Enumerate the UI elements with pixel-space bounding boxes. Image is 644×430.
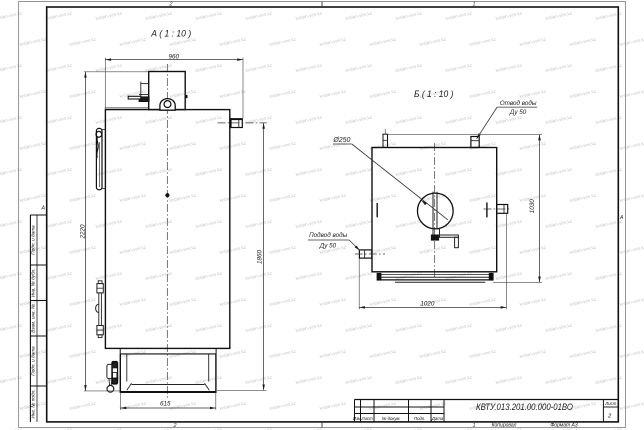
svg-text:kotlan-ves.kz: kotlan-ves.kz <box>219 140 247 151</box>
svg-text:2: 2 <box>168 1 172 7</box>
svg-text:kotlan-ves.kz: kotlan-ves.kz <box>295 218 323 229</box>
svg-text:kotlan-ves.kz: kotlan-ves.kz <box>619 296 644 307</box>
svg-text:kotlan-ves.kz: kotlan-ves.kz <box>495 322 523 333</box>
svg-text:kotlan-ves.kz: kotlan-ves.kz <box>319 88 347 99</box>
svg-text:kotlan-ves.kz: kotlan-ves.kz <box>619 192 644 203</box>
svg-text:kotlan-ves.kz: kotlan-ves.kz <box>95 10 123 21</box>
svg-text:kotlan-ves.kz: kotlan-ves.kz <box>569 36 597 47</box>
svg-text:КВТУ.013.201.00.000-01ВО: КВТУ.013.201.00.000-01ВО <box>476 402 573 412</box>
svg-text:kotlan-ves.kz: kotlan-ves.kz <box>0 166 23 177</box>
svg-text:kotlan-ves.kz: kotlan-ves.kz <box>269 244 297 255</box>
svg-text:kotlan-ves.kz: kotlan-ves.kz <box>395 166 423 177</box>
svg-text:kotlan-ves.kz: kotlan-ves.kz <box>495 10 523 21</box>
svg-text:Взам. инв. №: Взам. инв. № <box>31 304 36 333</box>
svg-text:kotlan-ves.kz: kotlan-ves.kz <box>245 322 273 333</box>
svg-text:kotlan-ves.kz: kotlan-ves.kz <box>419 36 447 47</box>
svg-text:kotlan-ves.kz: kotlan-ves.kz <box>569 140 597 151</box>
svg-text:kotlan-ves.kz: kotlan-ves.kz <box>369 36 397 47</box>
svg-text:kotlan-ves.kz: kotlan-ves.kz <box>469 348 497 359</box>
svg-text:А: А <box>40 206 45 212</box>
svg-text:kotlan-ves.kz: kotlan-ves.kz <box>369 244 397 255</box>
svg-text:kotlan-ves.kz: kotlan-ves.kz <box>469 192 497 203</box>
svg-text:kotlan-ves.kz: kotlan-ves.kz <box>119 296 147 307</box>
svg-text:kotlan-ves.kz: kotlan-ves.kz <box>119 244 147 255</box>
svg-text:kotlan-ves.kz: kotlan-ves.kz <box>195 10 223 21</box>
svg-text:kotlan-ves.kz: kotlan-ves.kz <box>469 296 497 307</box>
svg-text:kotlan-ves.kz: kotlan-ves.kz <box>545 218 573 229</box>
svg-text:kotlan-ves.kz: kotlan-ves.kz <box>169 140 197 151</box>
svg-text:kotlan-ves.kz: kotlan-ves.kz <box>19 88 47 99</box>
svg-text:kotlan-ves.kz: kotlan-ves.kz <box>219 400 247 411</box>
svg-text:kotlan-ves.kz: kotlan-ves.kz <box>319 400 347 411</box>
svg-text:kotlan-ves.kz: kotlan-ves.kz <box>219 192 247 203</box>
svg-text:kotlan-ves.kz: kotlan-ves.kz <box>19 192 47 203</box>
svg-text:kotlan-ves.kz: kotlan-ves.kz <box>295 374 323 385</box>
svg-text:kotlan-ves.kz: kotlan-ves.kz <box>469 244 497 255</box>
svg-text:kotlan-ves.kz: kotlan-ves.kz <box>569 400 597 411</box>
svg-text:kotlan-ves.kz: kotlan-ves.kz <box>319 348 347 359</box>
svg-text:Копировал: Копировал <box>492 423 517 429</box>
svg-text:kotlan-ves.kz: kotlan-ves.kz <box>0 218 23 229</box>
svg-text:kotlan-ves.kz: kotlan-ves.kz <box>345 114 373 125</box>
svg-text:kotlan-ves.kz: kotlan-ves.kz <box>0 426 23 430</box>
svg-text:kotlan-ves.kz: kotlan-ves.kz <box>195 62 223 73</box>
svg-text:kotlan-ves.kz: kotlan-ves.kz <box>169 88 197 99</box>
svg-text:kotlan-ves.kz: kotlan-ves.kz <box>319 36 347 47</box>
svg-text:kotlan-ves.kz: kotlan-ves.kz <box>219 36 247 47</box>
svg-text:kotlan-ves.kz: kotlan-ves.kz <box>445 114 473 125</box>
svg-text:kotlan-ves.kz: kotlan-ves.kz <box>245 166 273 177</box>
svg-text:kotlan-ves.kz: kotlan-ves.kz <box>45 218 73 229</box>
svg-text:kotlan-ves.kz: kotlan-ves.kz <box>95 322 123 333</box>
svg-text:kotlan-ves.kz: kotlan-ves.kz <box>519 140 547 151</box>
svg-text:kotlan-ves.kz: kotlan-ves.kz <box>95 114 123 125</box>
svg-text:kotlan-ves.kz: kotlan-ves.kz <box>19 36 47 47</box>
svg-text:kotlan-ves.kz: kotlan-ves.kz <box>169 400 197 411</box>
svg-text:kotlan-ves.kz: kotlan-ves.kz <box>569 244 597 255</box>
svg-text:960: 960 <box>169 53 180 60</box>
svg-text:kotlan-ves.kz: kotlan-ves.kz <box>219 296 247 307</box>
svg-text:kotlan-ves.kz: kotlan-ves.kz <box>269 296 297 307</box>
svg-text:kotlan-ves.kz: kotlan-ves.kz <box>395 10 423 21</box>
svg-text:kotlan-ves.kz: kotlan-ves.kz <box>345 62 373 73</box>
svg-text:kotlan-ves.kz: kotlan-ves.kz <box>345 322 373 333</box>
svg-text:kotlan-ves.kz: kotlan-ves.kz <box>495 62 523 73</box>
svg-text:kotlan-ves.kz: kotlan-ves.kz <box>145 426 173 430</box>
svg-text:kotlan-ves.kz: kotlan-ves.kz <box>495 166 523 177</box>
svg-text:kotlan-ves.kz: kotlan-ves.kz <box>95 62 123 73</box>
svg-text:kotlan-ves.kz: kotlan-ves.kz <box>45 10 73 21</box>
svg-text:Подп. и дата: Подп. и дата <box>31 225 36 255</box>
svg-text:kotlan-ves.kz: kotlan-ves.kz <box>119 140 147 151</box>
svg-text:kotlan-ves.kz: kotlan-ves.kz <box>569 296 597 307</box>
svg-text:kotlan-ves.kz: kotlan-ves.kz <box>519 296 547 307</box>
svg-text:Ду 50: Ду 50 <box>319 243 337 250</box>
svg-text:kotlan-ves.kz: kotlan-ves.kz <box>295 270 323 281</box>
svg-text:kotlan-ves.kz: kotlan-ves.kz <box>345 10 373 21</box>
svg-text:kotlan-ves.kz: kotlan-ves.kz <box>545 166 573 177</box>
svg-text:2: 2 <box>172 423 176 429</box>
svg-text:1860: 1860 <box>257 250 264 265</box>
svg-text:kotlan-ves.kz: kotlan-ves.kz <box>445 426 473 430</box>
svg-text:kotlan-ves.kz: kotlan-ves.kz <box>69 140 97 151</box>
svg-text:kotlan-ves.kz: kotlan-ves.kz <box>269 348 297 359</box>
svg-text:kotlan-ves.kz: kotlan-ves.kz <box>345 218 373 229</box>
svg-text:А: А <box>619 215 624 221</box>
svg-text:1020: 1020 <box>420 301 435 308</box>
svg-text:kotlan-ves.kz: kotlan-ves.kz <box>469 140 497 151</box>
svg-text:kotlan-ves.kz: kotlan-ves.kz <box>295 426 323 430</box>
svg-text:kotlan-ves.kz: kotlan-ves.kz <box>545 62 573 73</box>
svg-text:kotlan-ves.kz: kotlan-ves.kz <box>369 192 397 203</box>
svg-text:kotlan-ves.kz: kotlan-ves.kz <box>269 192 297 203</box>
svg-text:kotlan-ves.kz: kotlan-ves.kz <box>95 218 123 229</box>
svg-text:kotlan-ves.kz: kotlan-ves.kz <box>295 62 323 73</box>
svg-text:kotlan-ves.kz: kotlan-ves.kz <box>69 296 97 307</box>
svg-text:kotlan-ves.kz: kotlan-ves.kz <box>69 348 97 359</box>
svg-text:kotlan-ves.kz: kotlan-ves.kz <box>419 140 447 151</box>
svg-text:kotlan-ves.kz: kotlan-ves.kz <box>619 140 644 151</box>
svg-text:kotlan-ves.kz: kotlan-ves.kz <box>145 114 173 125</box>
svg-text:615: 615 <box>160 400 171 407</box>
svg-text:kotlan-ves.kz: kotlan-ves.kz <box>569 348 597 359</box>
svg-text:Дата: Дата <box>431 416 444 421</box>
svg-text:kotlan-ves.kz: kotlan-ves.kz <box>295 114 323 125</box>
svg-text:kotlan-ves.kz: kotlan-ves.kz <box>445 374 473 385</box>
svg-text:kotlan-ves.kz: kotlan-ves.kz <box>195 426 223 430</box>
svg-text:kotlan-ves.kz: kotlan-ves.kz <box>369 88 397 99</box>
svg-text:kotlan-ves.kz: kotlan-ves.kz <box>45 270 73 281</box>
svg-text:kotlan-ves.kz: kotlan-ves.kz <box>195 166 223 177</box>
svg-text:kotlan-ves.kz: kotlan-ves.kz <box>269 400 297 411</box>
svg-text:kotlan-ves.kz: kotlan-ves.kz <box>145 270 173 281</box>
svg-text:kotlan-ves.kz: kotlan-ves.kz <box>395 218 423 229</box>
svg-text:kotlan-ves.kz: kotlan-ves.kz <box>295 10 323 21</box>
svg-text:kotlan-ves.kz: kotlan-ves.kz <box>619 88 644 99</box>
svg-text:Подп.: Подп. <box>414 416 425 421</box>
svg-text:kotlan-ves.kz: kotlan-ves.kz <box>69 36 97 47</box>
svg-text:kotlan-ves.kz: kotlan-ves.kz <box>345 166 373 177</box>
svg-text:1: 1 <box>472 423 475 429</box>
svg-text:kotlan-ves.kz: kotlan-ves.kz <box>195 322 223 333</box>
svg-text:kotlan-ves.kz: kotlan-ves.kz <box>545 374 573 385</box>
svg-text:kotlan-ves.kz: kotlan-ves.kz <box>95 426 123 430</box>
svg-text:kotlan-ves.kz: kotlan-ves.kz <box>245 374 273 385</box>
svg-text:kotlan-ves.kz: kotlan-ves.kz <box>69 192 97 203</box>
svg-text:Формат А3: Формат А3 <box>550 423 578 429</box>
svg-text:Ду 50: Ду 50 <box>509 109 527 116</box>
svg-text:kotlan-ves.kz: kotlan-ves.kz <box>419 348 447 359</box>
svg-text:kotlan-ves.kz: kotlan-ves.kz <box>495 270 523 281</box>
svg-text:kotlan-ves.kz: kotlan-ves.kz <box>619 244 644 255</box>
svg-text:kotlan-ves.kz: kotlan-ves.kz <box>245 270 273 281</box>
svg-text:kotlan-ves.kz: kotlan-ves.kz <box>369 296 397 307</box>
svg-text:kotlan-ves.kz: kotlan-ves.kz <box>345 374 373 385</box>
svg-text:kotlan-ves.kz: kotlan-ves.kz <box>419 400 447 411</box>
svg-text:kotlan-ves.kz: kotlan-ves.kz <box>369 400 397 411</box>
svg-text:kotlan-ves.kz: kotlan-ves.kz <box>619 36 644 47</box>
svg-text:kotlan-ves.kz: kotlan-ves.kz <box>245 218 273 229</box>
svg-text:kotlan-ves.kz: kotlan-ves.kz <box>545 114 573 125</box>
svg-text:kotlan-ves.kz: kotlan-ves.kz <box>419 244 447 255</box>
svg-text:Отвод воды: Отвод воды <box>500 99 537 107</box>
svg-text:kotlan-ves.kz: kotlan-ves.kz <box>519 348 547 359</box>
svg-text:kotlan-ves.kz: kotlan-ves.kz <box>295 166 323 177</box>
svg-text:kotlan-ves.kz: kotlan-ves.kz <box>195 114 223 125</box>
svg-text:Б ( 1 : 10 ): Б ( 1 : 10 ) <box>414 89 454 100</box>
svg-text:kotlan-ves.kz: kotlan-ves.kz <box>519 88 547 99</box>
svg-text:Инв. № дубл.: Инв. № дубл. <box>31 268 36 297</box>
svg-text:kotlan-ves.kz: kotlan-ves.kz <box>169 192 197 203</box>
svg-text:kotlan-ves.kz: kotlan-ves.kz <box>195 270 223 281</box>
svg-text:kotlan-ves.kz: kotlan-ves.kz <box>45 374 73 385</box>
svg-text:kotlan-ves.kz: kotlan-ves.kz <box>0 374 23 385</box>
svg-text:kotlan-ves.kz: kotlan-ves.kz <box>45 426 73 430</box>
svg-text:kotlan-ves.kz: kotlan-ves.kz <box>319 296 347 307</box>
svg-text:kotlan-ves.kz: kotlan-ves.kz <box>0 62 23 73</box>
svg-text:kotlan-ves.kz: kotlan-ves.kz <box>495 374 523 385</box>
svg-text:kotlan-ves.kz: kotlan-ves.kz <box>119 400 147 411</box>
svg-text:kotlan-ves.kz: kotlan-ves.kz <box>169 244 197 255</box>
svg-text:kotlan-ves.kz: kotlan-ves.kz <box>145 10 173 21</box>
svg-text:kotlan-ves.kz: kotlan-ves.kz <box>395 322 423 333</box>
svg-text:kotlan-ves.kz: kotlan-ves.kz <box>395 374 423 385</box>
svg-text:Подп. и дата: Подп. и дата <box>31 346 36 376</box>
svg-text:kotlan-ves.kz: kotlan-ves.kz <box>545 10 573 21</box>
svg-text:2: 2 <box>607 414 612 420</box>
svg-text:kotlan-ves.kz: kotlan-ves.kz <box>145 374 173 385</box>
svg-text:kotlan-ves.kz: kotlan-ves.kz <box>69 88 97 99</box>
svg-text:kotlan-ves.kz: kotlan-ves.kz <box>0 114 23 125</box>
svg-text:kotlan-ves.kz: kotlan-ves.kz <box>519 244 547 255</box>
svg-text:kotlan-ves.kz: kotlan-ves.kz <box>295 322 323 333</box>
svg-text:kotlan-ves.kz: kotlan-ves.kz <box>619 400 644 411</box>
svg-text:kotlan-ves.kz: kotlan-ves.kz <box>245 62 273 73</box>
svg-text:kotlan-ves.kz: kotlan-ves.kz <box>195 218 223 229</box>
svg-text:Лист: Лист <box>604 401 616 406</box>
svg-text:kotlan-ves.kz: kotlan-ves.kz <box>269 88 297 99</box>
svg-text:kotlan-ves.kz: kotlan-ves.kz <box>319 192 347 203</box>
svg-text:kotlan-ves.kz: kotlan-ves.kz <box>545 322 573 333</box>
svg-text:kotlan-ves.kz: kotlan-ves.kz <box>469 36 497 47</box>
svg-text:kotlan-ves.kz: kotlan-ves.kz <box>0 322 23 333</box>
svg-text:1030: 1030 <box>529 199 536 214</box>
svg-text:№ докум.: № докум. <box>382 416 401 421</box>
svg-text:kotlan-ves.kz: kotlan-ves.kz <box>395 426 423 430</box>
svg-text:kotlan-ves.kz: kotlan-ves.kz <box>245 10 273 21</box>
svg-text:kotlan-ves.kz: kotlan-ves.kz <box>145 218 173 229</box>
svg-text:kotlan-ves.kz: kotlan-ves.kz <box>0 10 23 21</box>
svg-text:kotlan-ves.kz: kotlan-ves.kz <box>545 270 573 281</box>
svg-text:kotlan-ves.kz: kotlan-ves.kz <box>269 36 297 47</box>
svg-text:kotlan-ves.kz: kotlan-ves.kz <box>0 270 23 281</box>
svg-text:kotlan-ves.kz: kotlan-ves.kz <box>145 166 173 177</box>
svg-text:kotlan-ves.kz: kotlan-ves.kz <box>169 296 197 307</box>
svg-text:kotlan-ves.kz: kotlan-ves.kz <box>445 62 473 73</box>
svg-text:kotlan-ves.kz: kotlan-ves.kz <box>445 166 473 177</box>
svg-text:kotlan-ves.kz: kotlan-ves.kz <box>445 218 473 229</box>
svg-text:kotlan-ves.kz: kotlan-ves.kz <box>45 166 73 177</box>
svg-text:kotlan-ves.kz: kotlan-ves.kz <box>95 270 123 281</box>
svg-text:kotlan-ves.kz: kotlan-ves.kz <box>19 140 47 151</box>
svg-text:kotlan-ves.kz: kotlan-ves.kz <box>145 322 173 333</box>
svg-text:Ø250: Ø250 <box>332 137 350 144</box>
svg-text:kotlan-ves.kz: kotlan-ves.kz <box>445 10 473 21</box>
svg-text:kotlan-ves.kz: kotlan-ves.kz <box>245 114 273 125</box>
svg-text:kotlan-ves.kz: kotlan-ves.kz <box>45 322 73 333</box>
svg-text:kotlan-ves.kz: kotlan-ves.kz <box>345 426 373 430</box>
svg-text:kotlan-ves.kz: kotlan-ves.kz <box>569 192 597 203</box>
svg-text:kotlan-ves.kz: kotlan-ves.kz <box>245 426 273 430</box>
svg-text:Инв. № подл.: Инв. № подл. <box>31 389 36 418</box>
svg-text:kotlan-ves.kz: kotlan-ves.kz <box>495 218 523 229</box>
svg-text:Подвод воды: Подвод воды <box>309 231 348 239</box>
svg-text:kotlan-ves.kz: kotlan-ves.kz <box>595 426 623 430</box>
svg-text:kotlan-ves.kz: kotlan-ves.kz <box>395 114 423 125</box>
svg-text:kotlan-ves.kz: kotlan-ves.kz <box>445 322 473 333</box>
svg-text:kotlan-ves.kz: kotlan-ves.kz <box>269 140 297 151</box>
svg-text:kotlan-ves.kz: kotlan-ves.kz <box>519 36 547 47</box>
svg-text:kotlan-ves.kz: kotlan-ves.kz <box>469 88 497 99</box>
svg-text:А ( 1 : 10 ): А ( 1 : 10 ) <box>150 29 191 40</box>
svg-text:kotlan-ves.kz: kotlan-ves.kz <box>619 348 644 359</box>
svg-text:kotlan-ves.kz: kotlan-ves.kz <box>395 62 423 73</box>
svg-text:kotlan-ves.kz: kotlan-ves.kz <box>119 192 147 203</box>
svg-text:kotlan-ves.kz: kotlan-ves.kz <box>69 244 97 255</box>
svg-text:Лист: Лист <box>361 416 373 421</box>
svg-text:kotlan-ves.kz: kotlan-ves.kz <box>45 62 73 73</box>
svg-text:kotlan-ves.kz: kotlan-ves.kz <box>219 348 247 359</box>
svg-text:kotlan-ves.kz: kotlan-ves.kz <box>69 400 97 411</box>
svg-text:kotlan-ves.kz: kotlan-ves.kz <box>119 36 147 47</box>
svg-text:2220: 2220 <box>79 224 86 240</box>
svg-text:kotlan-ves.kz: kotlan-ves.kz <box>569 88 597 99</box>
svg-text:1: 1 <box>472 1 475 7</box>
svg-text:kotlan-ves.kz: kotlan-ves.kz <box>219 244 247 255</box>
svg-text:kotlan-ves.kz: kotlan-ves.kz <box>369 348 397 359</box>
svg-text:kotlan-ves.kz: kotlan-ves.kz <box>45 114 73 125</box>
